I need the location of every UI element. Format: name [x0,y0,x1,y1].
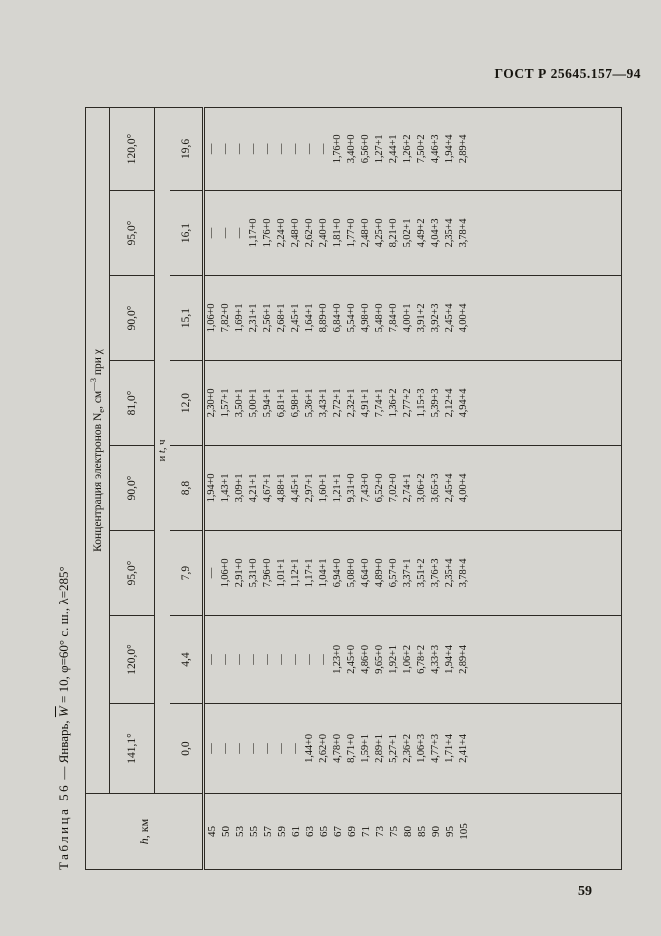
ne-value: 2,30+0 [204,361,220,446]
header-rows: h, км Концентрация электронов Ne, см—3 п… [86,107,204,869]
chi-row: 141,1°120,0°95,0°90,0°81,0°90,0°95,0°120… [110,107,155,869]
ne-value: 2,35+4 [443,191,457,276]
ne-value: — [219,704,233,794]
ne-value: 1,76+0 [331,107,345,190]
ne-value: 1,59+1 [359,704,373,794]
table-row: 755,27+11,92+16,57+07,02+01,36+27,84+08,… [387,107,401,869]
ne-value: 5,00+1 [247,361,261,446]
h-value: 67 [331,794,345,870]
table-content: Таблица 56 — Январь, W = 10, φ=60° с. ш.… [56,106,620,870]
h-value: 73 [373,794,387,870]
ne-header: Концентрация электронов Ne, см—3 при χ [86,107,110,793]
ne-value: 2,45+4 [443,446,457,531]
ne-value: — [247,107,261,190]
ne-value: 2,62+0 [303,191,317,276]
ne-value: 2,48+0 [289,191,303,276]
t-row: 0,04,47,98,812,015,116,119,6 [170,107,204,869]
ne-value: 1,94+4 [443,107,457,190]
ne-value: 2,35+4 [443,531,457,616]
table-row: 698,71+02,45+05,08+09,31+02,32+15,54+01,… [345,107,359,869]
ne-value: 1,57+1 [219,361,233,446]
ne-value: — [247,616,261,704]
ne-value: 2,44+1 [387,107,401,190]
ne-value: 2,45+0 [345,616,359,704]
ne-value: 1,23+0 [331,616,345,704]
table-row: 951,71+41,94+42,35+42,45+42,12+42,45+42,… [443,107,457,869]
ne-value: 1,36+2 [387,361,401,446]
table-row: 652,62+0—1,04+11,60+13,43+18,89+02,40+0— [317,107,331,869]
table-row: 61——1,12+14,45+16,98+12,45+12,48+0— [289,107,303,869]
ne-value: 2,48+0 [359,191,373,276]
ne-value: 3,06+2 [415,446,429,531]
ne-value: 1,94+4 [443,616,457,704]
ne-value: 1,21+1 [331,446,345,531]
chi-value: 141,1° [110,704,155,794]
ne-value: 3,43+1 [317,361,331,446]
ne-value: 6,78+2 [415,616,429,704]
ne-header-row: h, км Концентрация электронов Ne, см—3 п… [86,107,110,869]
chi-value: 95,0° [110,531,155,616]
chi-value: 120,0° [110,107,155,190]
ne-value: 5,39+3 [429,361,443,446]
ne-value: — [289,107,303,190]
ne-value: 1,01+1 [275,531,289,616]
empty-cell [471,276,622,361]
h-column-header: h, км [86,794,204,870]
ne-value: 2,45+1 [289,276,303,361]
h-value: 63 [303,794,317,870]
ne-value: — [317,616,331,704]
data-rows: 45———1,94+02,30+01,06+0——50——1,06+01,43+… [204,107,622,869]
empty-cell [471,531,622,616]
ne-value: 2,24+0 [275,191,289,276]
ne-value: 5,54+0 [345,276,359,361]
standard-header: ГОСТ Р 25645.157—94 [494,66,641,82]
h-symbol: h [137,838,151,844]
ne-value: 4,89+0 [373,531,387,616]
h-value: 95 [443,794,457,870]
h-value: 50 [219,794,233,870]
ne-value: — [204,616,220,704]
ne-value: — [204,107,220,190]
ne-value: 8,89+0 [317,276,331,361]
ne-value: 4,45+1 [289,446,303,531]
ne-value: 3,09+1 [233,446,247,531]
table-row: 50——1,06+01,43+11,57+17,82+0—— [219,107,233,869]
chi-value: 90,0° [110,446,155,531]
h-value: 59 [275,794,289,870]
ne-value: 1,94+0 [204,446,220,531]
ne-value: 1,06+3 [415,704,429,794]
empty-cell [471,107,622,190]
table-title-number: Таблица 56 [56,783,71,870]
table-row: 802,36+21,06+23,37+12,74+12,77+24,00+15,… [401,107,415,869]
ne-value: 2,91+0 [233,531,247,616]
ne-value: 3,91+2 [415,276,429,361]
ne-value: 5,27+1 [387,704,401,794]
table-row: 55——5,31+04,21+15,00+12,31+11,17+0— [247,107,261,869]
ne-subscript: e [97,409,107,413]
ne-value: — [317,107,331,190]
h-value: 65 [317,794,331,870]
h-units: , км [137,819,151,838]
ne-value: 3,51+2 [415,531,429,616]
t-symbol: t [157,450,168,453]
ne-value: 8,21+0 [387,191,401,276]
ne-value: 1,15+3 [415,361,429,446]
ne-value: 2,89+4 [457,616,471,704]
ne-value: 1,26+2 [401,107,415,190]
ne-value: 1,60+1 [317,446,331,531]
ne-value: 1,43+1 [219,446,233,531]
ne-value: 2,41+4 [457,704,471,794]
chi-value: 81,0° [110,361,155,446]
ne-value: — [261,107,275,190]
ne-value: — [275,704,289,794]
h-value: 90 [429,794,443,870]
ne-value: — [233,704,247,794]
ne-value: 1,76+0 [261,191,275,276]
ne-exponent: —3 [88,378,98,391]
h-value: 53 [233,794,247,870]
ne-value: 4,78+0 [331,704,345,794]
ne-value: 2,89+1 [373,704,387,794]
ne-value: 2,97+1 [303,446,317,531]
h-value: 57 [261,794,275,870]
ne-value: 4,25+0 [373,191,387,276]
h-value: 45 [204,794,220,870]
ne-value: 4,04+3 [429,191,443,276]
ne-value: 1,04+1 [317,531,331,616]
ne-value: — [219,191,233,276]
empty-cell [471,191,622,276]
ne-value: — [204,191,220,276]
ne-value: 4,77+3 [429,704,443,794]
h-value: 75 [387,794,401,870]
and-t-pre: и [157,453,168,461]
ne-value: 4,00+4 [457,446,471,531]
ne-value: 6,98+1 [289,361,303,446]
ne-value: 3,76+3 [429,531,443,616]
empty-filler-row [471,107,622,869]
ne-value: 2,77+2 [401,361,415,446]
ne-value: — [247,704,261,794]
ne-value: 4,00+1 [401,276,415,361]
ne-value: 3,40+0 [345,107,359,190]
ne-value: 2,31+1 [247,276,261,361]
ne-value: — [219,107,233,190]
ne-value: 6,84+0 [331,276,345,361]
ne-value: 1,06+2 [401,616,415,704]
ne-value: 1,17+1 [303,531,317,616]
table-row: 1052,41+42,89+43,78+44,00+44,94+44,00+43… [457,107,471,869]
ne-value: 1,69+1 [233,276,247,361]
empty-cell [471,361,622,446]
t-units: , ч [157,440,168,451]
chi-value: 95,0° [110,191,155,276]
ne-value: 9,31+0 [345,446,359,531]
table-row: 59——1,01+14,88+16,81+12,68+12,24+0— [275,107,289,869]
ne-value: 7,84+0 [387,276,401,361]
ne-value: 4,86+0 [359,616,373,704]
h-value: 80 [401,794,415,870]
ne-value: 4,94+4 [457,361,471,446]
ne-value: 4,49+2 [415,191,429,276]
t-value: 8,8 [170,446,204,531]
electron-concentration-table: h, км Концентрация электронов Ne, см—3 п… [85,107,622,870]
ne-text: Концентрация электронов N [92,413,104,552]
ne-value: 5,02+1 [401,191,415,276]
ne-value: 6,57+0 [387,531,401,616]
ne-value: 5,08+0 [345,531,359,616]
ne-value: — [261,704,275,794]
ne-value: — [204,531,220,616]
ne-value: 1,27+1 [373,107,387,190]
h-value: 85 [415,794,429,870]
table-title-params: = 10, φ=60° с. ш., λ=285° [56,566,71,706]
chi-value: 90,0° [110,276,155,361]
h-value: 105 [457,794,471,870]
t-value: 15,1 [170,276,204,361]
t-value: 19,6 [170,107,204,190]
ne-value: 5,36+1 [303,361,317,446]
chi-value: 120,0° [110,616,155,704]
ne-value: 9,65+0 [373,616,387,704]
ne-value: 7,43+0 [359,446,373,531]
ne-value: 4,33+3 [429,616,443,704]
t-value: 7,9 [170,531,204,616]
ne-value: — [233,616,247,704]
ne-value: — [289,704,303,794]
ne-value: 1,44+0 [303,704,317,794]
ne-value: 5,48+0 [373,276,387,361]
and-t-row: и t, ч [155,107,171,869]
ne-value: 4,21+1 [247,446,261,531]
page-number: 59 [578,884,592,900]
ne-value: 3,37+1 [401,531,415,616]
t-value: 0,0 [170,704,204,794]
ne-value: 4,64+0 [359,531,373,616]
ne-value: 1,81+0 [331,191,345,276]
ne-value: 5,94+1 [261,361,275,446]
ne-value: 1,06+0 [219,531,233,616]
ne-value: 1,77+0 [345,191,359,276]
table-row: 904,77+34,33+33,76+33,65+35,39+33,92+34,… [429,107,443,869]
h-value: 69 [345,794,359,870]
ne-value: 3,50+1 [233,361,247,446]
table-title: Таблица 56 — Январь, W = 10, φ=60° с. ш.… [56,106,80,870]
table-row: 732,89+19,65+04,89+06,52+07,74+15,48+04,… [373,107,387,869]
table-row: 57——7,96+04,67+15,94+12,56+11,76+0— [261,107,275,869]
rotated-table-block: Таблица 56 — Январь, W = 10, φ=60° с. ш.… [56,106,620,870]
ne-value: 6,94+0 [331,531,345,616]
table-row: 631,44+0—1,17+12,97+15,36+11,64+12,62+0— [303,107,317,869]
ne-value: 4,91+1 [359,361,373,446]
ne-value: — [204,704,220,794]
ne-value: 3,78+4 [457,531,471,616]
empty-cell [471,704,622,794]
ne-value: — [275,107,289,190]
ne-value: 1,92+1 [387,616,401,704]
ne-value: 2,36+2 [401,704,415,794]
ne-value: 2,32+1 [345,361,359,446]
ne-value: 1,12+1 [289,531,303,616]
ne-value: 1,64+1 [303,276,317,361]
ne-value: 2,56+1 [261,276,275,361]
ne-value: 7,02+0 [387,446,401,531]
empty-cell [471,616,622,704]
ne-value: — [303,107,317,190]
ne-value: 3,65+3 [429,446,443,531]
ne-value: 7,74+1 [373,361,387,446]
ne-value: 2,74+1 [401,446,415,531]
ne-value: 2,12+4 [443,361,457,446]
ne-value: 4,88+1 [275,446,289,531]
table-row: 711,59+14,86+04,64+07,43+04,91+14,98+02,… [359,107,373,869]
ne-value: 6,52+0 [373,446,387,531]
ne-value: 4,00+4 [457,276,471,361]
empty-cell [471,794,622,870]
ne-value: 4,98+0 [359,276,373,361]
ne-value: — [289,616,303,704]
ne-units: , см [92,391,104,409]
table-row: 53——2,91+03,09+13,50+11,69+1—— [233,107,247,869]
and-t-label: и t, ч [155,107,171,793]
ne-value: 2,62+0 [317,704,331,794]
ne-value: 1,71+4 [443,704,457,794]
ne-value: 2,72+1 [331,361,345,446]
ne-value: 2,45+4 [443,276,457,361]
empty-cell [471,446,622,531]
ne-value: 1,06+0 [204,276,220,361]
ne-value: 3,78+4 [457,191,471,276]
ne-value: 7,96+0 [261,531,275,616]
ne-value: 7,82+0 [219,276,233,361]
table-row: 851,06+36,78+23,51+23,06+21,15+33,91+24,… [415,107,429,869]
h-value: 55 [247,794,261,870]
ne-value: 6,81+1 [275,361,289,446]
ne-value: 5,31+0 [247,531,261,616]
ne-value: — [261,616,275,704]
ne-value: — [275,616,289,704]
t-value: 16,1 [170,191,204,276]
ne-value: 4,46+3 [429,107,443,190]
t-value: 12,0 [170,361,204,446]
ne-value: 2,40+0 [317,191,331,276]
ne-value: 4,67+1 [261,446,275,531]
h-value: 71 [359,794,373,870]
ne-value: — [233,191,247,276]
ne-value: 1,17+0 [247,191,261,276]
table-row: 674,78+01,23+06,94+01,21+12,72+16,84+01,… [331,107,345,869]
ne-value: 6,56+0 [359,107,373,190]
h-value: 61 [289,794,303,870]
table-title-month: — Январь, [56,717,71,783]
ne-value: — [233,107,247,190]
ne-value: — [303,616,317,704]
ne-chi: при χ [92,349,104,378]
ne-value: 7,50+2 [415,107,429,190]
table-row: 45———1,94+02,30+01,06+0—— [204,107,220,869]
t-value: 4,4 [170,616,204,704]
solar-index-symbol: W [56,706,71,717]
ne-value: 3,92+3 [429,276,443,361]
ne-value: 2,89+4 [457,107,471,190]
ne-value: — [219,616,233,704]
ne-value: 2,68+1 [275,276,289,361]
ne-value: 8,71+0 [345,704,359,794]
